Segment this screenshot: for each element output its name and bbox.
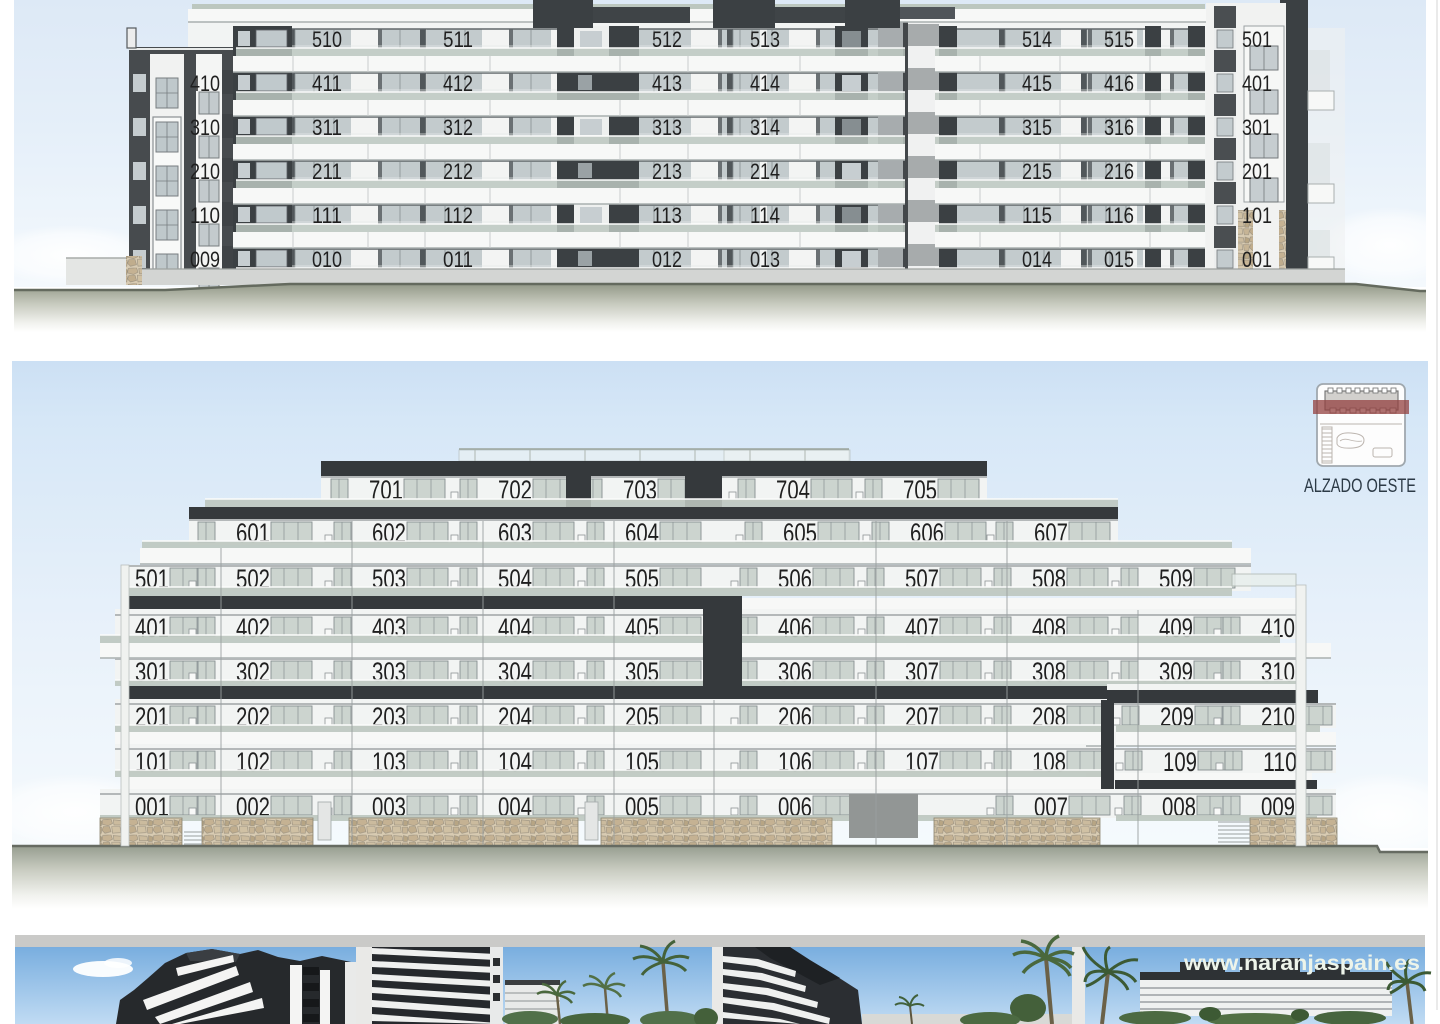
svg-text:512: 512 bbox=[652, 27, 682, 52]
svg-text:315: 315 bbox=[1022, 115, 1052, 140]
svg-text:012: 012 bbox=[652, 247, 682, 272]
svg-text:210: 210 bbox=[190, 159, 220, 184]
svg-text:010: 010 bbox=[312, 247, 342, 272]
svg-text:113: 113 bbox=[652, 203, 682, 228]
svg-text:214: 214 bbox=[750, 159, 780, 184]
svg-text:011: 011 bbox=[443, 247, 473, 272]
svg-text:114: 114 bbox=[750, 203, 780, 228]
svg-text:412: 412 bbox=[443, 71, 473, 96]
svg-text:www.naranjaspain.es: www.naranjaspain.es bbox=[1183, 952, 1420, 975]
svg-text:009: 009 bbox=[190, 247, 220, 272]
svg-text:013: 013 bbox=[750, 247, 780, 272]
svg-text:115: 115 bbox=[1022, 203, 1052, 228]
svg-text:514: 514 bbox=[1022, 27, 1052, 52]
svg-text:314: 314 bbox=[750, 115, 780, 140]
svg-text:414: 414 bbox=[750, 71, 780, 96]
svg-text:ALZADO OESTE: ALZADO OESTE bbox=[1304, 476, 1416, 497]
svg-text:015: 015 bbox=[1104, 247, 1134, 272]
svg-text:109: 109 bbox=[1163, 747, 1197, 777]
svg-text:001: 001 bbox=[1242, 247, 1272, 272]
svg-text:116: 116 bbox=[1104, 203, 1134, 228]
svg-text:311: 311 bbox=[312, 115, 342, 140]
svg-text:410: 410 bbox=[190, 71, 220, 96]
svg-text:112: 112 bbox=[443, 203, 473, 228]
svg-text:416: 416 bbox=[1104, 71, 1134, 96]
svg-text:411: 411 bbox=[312, 71, 342, 96]
svg-text:513: 513 bbox=[750, 27, 780, 52]
svg-text:511: 511 bbox=[443, 27, 473, 52]
svg-text:216: 216 bbox=[1104, 159, 1134, 184]
svg-text:515: 515 bbox=[1104, 27, 1134, 52]
svg-text:211: 211 bbox=[312, 159, 342, 184]
svg-text:301: 301 bbox=[1242, 115, 1272, 140]
svg-text:316: 316 bbox=[1104, 115, 1134, 140]
svg-text:401: 401 bbox=[1242, 71, 1272, 96]
svg-text:510: 510 bbox=[312, 27, 342, 52]
svg-text:111: 111 bbox=[312, 203, 342, 228]
svg-text:312: 312 bbox=[443, 115, 473, 140]
svg-text:313: 313 bbox=[652, 115, 682, 140]
svg-text:413: 413 bbox=[652, 71, 682, 96]
svg-text:014: 014 bbox=[1022, 247, 1052, 272]
svg-text:310: 310 bbox=[190, 115, 220, 140]
svg-text:213: 213 bbox=[652, 159, 682, 184]
svg-text:215: 215 bbox=[1022, 159, 1052, 184]
svg-text:110: 110 bbox=[190, 203, 220, 228]
svg-text:201: 201 bbox=[1242, 159, 1272, 184]
svg-text:212: 212 bbox=[443, 159, 473, 184]
svg-text:415: 415 bbox=[1022, 71, 1052, 96]
svg-text:110: 110 bbox=[1263, 747, 1297, 777]
svg-text:501: 501 bbox=[1242, 27, 1272, 52]
svg-text:101: 101 bbox=[1242, 203, 1272, 228]
